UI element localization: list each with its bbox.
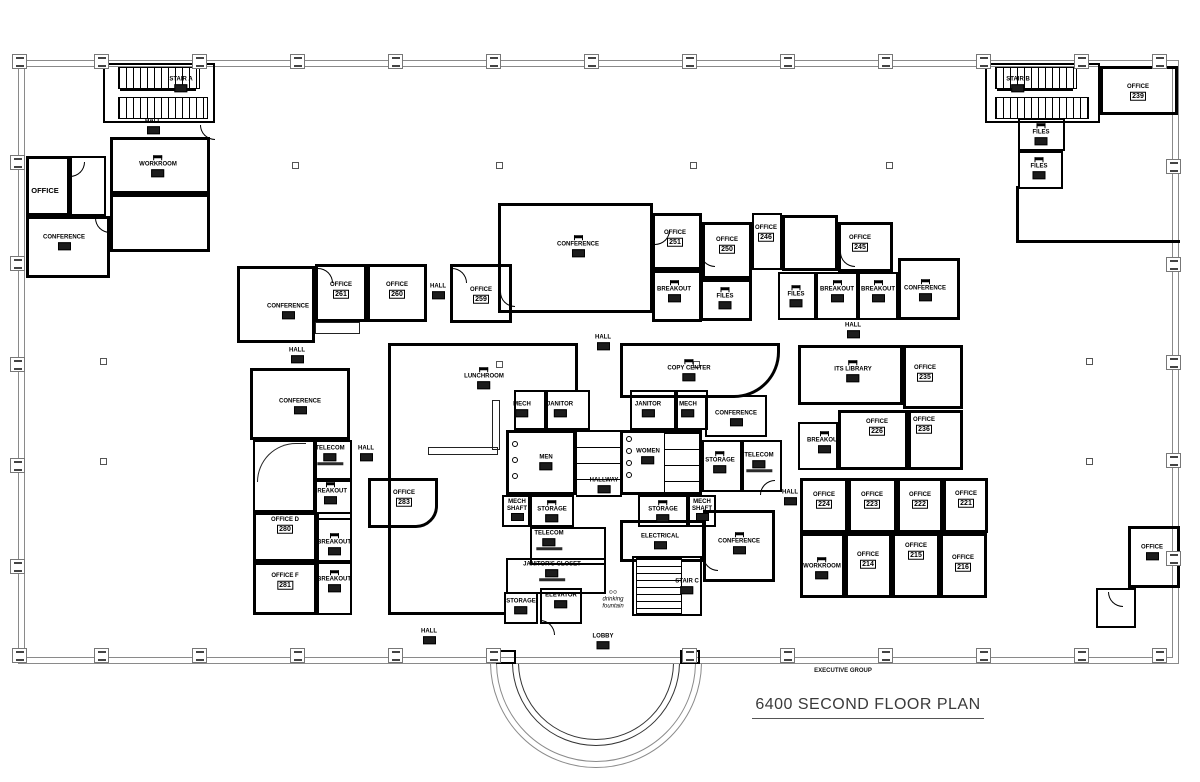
room-label: BREAKOUT	[861, 280, 895, 302]
room-label: LOBBY	[593, 633, 614, 649]
room-name: HALL	[289, 347, 305, 354]
room-name: WOMEN	[636, 448, 660, 455]
room-label: OFFICE246	[755, 225, 777, 242]
column-marker	[878, 54, 893, 69]
room-number	[598, 485, 611, 493]
room-label: BREAKOUT	[317, 570, 351, 592]
desk-icon	[153, 155, 162, 160]
room-number	[657, 514, 670, 522]
toilet-fixture	[626, 472, 632, 478]
room-label: ELECTRICAL	[641, 533, 679, 549]
column-marker	[584, 54, 599, 69]
room-label: STORAGE	[537, 500, 567, 522]
desk-icon	[330, 533, 339, 538]
room-name: OFFICE	[849, 235, 871, 242]
room-name: OFFICE	[1141, 544, 1163, 551]
room-name: CONFERENCE	[904, 285, 946, 292]
room-number: 281	[277, 580, 293, 589]
desk-icon	[848, 360, 857, 365]
column-marker	[780, 54, 795, 69]
column-marker	[1166, 257, 1181, 272]
room-label: HALL	[845, 322, 861, 338]
room-name: FILES	[1030, 163, 1047, 170]
room-name: OFFICE	[330, 282, 352, 289]
room-label: HALLWAY	[590, 477, 619, 493]
room-label: FILES	[1032, 123, 1049, 145]
desk-icon	[874, 280, 883, 285]
room-number	[753, 460, 766, 468]
wall	[388, 612, 506, 615]
room-name: OFFICE	[914, 365, 936, 372]
room-name: OFFICE	[866, 419, 888, 426]
room-number	[846, 374, 859, 382]
column-marker	[94, 54, 109, 69]
toilet-fixture	[626, 460, 632, 466]
wall	[498, 203, 653, 313]
room-label: OFFICE	[31, 188, 59, 195]
room-number	[546, 569, 559, 577]
room-number	[681, 586, 694, 594]
room-name: STORAGE	[506, 598, 536, 605]
room-name: WORKROOM	[803, 563, 841, 570]
grid-marker	[886, 162, 893, 169]
room-number	[831, 294, 844, 302]
room-number: 222	[912, 499, 928, 508]
room-name: BREAKOUT	[657, 286, 691, 293]
room-number	[553, 409, 566, 417]
stair-treads	[995, 97, 1089, 119]
room-name: STAIR A	[169, 76, 192, 83]
room-number: 259	[473, 294, 489, 303]
room-number: 239	[1130, 91, 1146, 100]
wall	[110, 194, 210, 252]
room-label: BREAKOUT	[657, 280, 691, 302]
room-label: MECH SHAFT	[507, 499, 527, 521]
room-label: JANITOR	[635, 401, 661, 417]
room-number	[515, 606, 528, 614]
room-number: 283	[396, 497, 412, 506]
room-name: OFFICE	[664, 230, 686, 237]
fountain-icon: ⊙⊙	[609, 591, 617, 596]
room-label: STORAGE	[648, 500, 678, 522]
column-marker	[976, 54, 991, 69]
room-name: HALL	[421, 628, 437, 635]
room-label: HALL	[595, 334, 611, 350]
room-number: 251	[667, 237, 683, 246]
room-number	[729, 418, 742, 426]
room-label: TELECOM	[534, 530, 563, 550]
room-number: 250	[719, 244, 735, 253]
room-number	[597, 641, 610, 649]
desk-icon	[659, 500, 668, 505]
room-label: OFFICE214	[857, 552, 879, 569]
desk-icon	[1036, 123, 1045, 128]
room-number	[714, 465, 727, 473]
room-number	[147, 126, 160, 134]
room-label: JANITOR'S CLOSET	[523, 561, 581, 581]
room-name: OFFICE D	[271, 517, 299, 524]
column-marker	[10, 256, 25, 271]
room-number: 235	[917, 372, 933, 381]
desk-icon	[833, 280, 842, 285]
wall	[752, 213, 782, 270]
room-name: STORAGE	[537, 506, 567, 513]
room-number	[668, 294, 681, 302]
room-name: OFFICE	[386, 282, 408, 289]
toilet-fixture	[512, 457, 518, 463]
room-label: HALL	[289, 347, 305, 363]
desk-icon	[920, 279, 929, 284]
room-label: OFFICE	[1141, 544, 1163, 560]
room-label: OFFICE235	[914, 365, 936, 382]
column-marker	[682, 54, 697, 69]
room-number: 236	[916, 424, 932, 433]
column-marker	[1152, 54, 1167, 69]
room-name: OFFICE	[1127, 84, 1149, 91]
room-label: LUNCHROOM	[464, 367, 504, 389]
room-number	[324, 453, 337, 461]
room-number	[423, 636, 436, 644]
room-number	[432, 291, 445, 299]
toilet-fixture	[626, 448, 632, 454]
room-name: OFFICE	[857, 552, 879, 559]
floor-plan: 6400 SECOND FLOOR PLAN EXECUTIVE GROUP S…	[0, 0, 1200, 782]
room-label: OFFICE222	[909, 492, 931, 509]
room-label: OFFICE239	[1127, 84, 1149, 101]
room-name: TELECOM	[315, 445, 344, 452]
room-number	[151, 169, 164, 177]
room-number	[597, 342, 610, 350]
room-name: MECH	[513, 401, 531, 408]
room-name: CONFERENCE	[718, 538, 760, 545]
entry-canopy	[488, 664, 708, 778]
column-marker	[1166, 551, 1181, 566]
wall	[575, 343, 578, 391]
room-name: HALL	[430, 283, 446, 290]
room-label: FILES	[787, 285, 804, 307]
column-marker	[1152, 648, 1167, 663]
room-number	[696, 513, 709, 521]
room-label: OFFICE215	[905, 543, 927, 560]
room-number: 215	[908, 550, 924, 559]
room-name: FILES	[1032, 129, 1049, 136]
room-number	[293, 406, 306, 414]
room-label: MECH SHAFT	[692, 499, 712, 521]
room-name: OFFICE	[813, 492, 835, 499]
room-number: 261	[333, 289, 349, 298]
room-name: OFFICE	[755, 225, 777, 232]
room-name: STAIR B	[1006, 76, 1030, 83]
column-marker	[486, 54, 501, 69]
room-label: CONFERENCE	[904, 279, 946, 301]
room-name: MECH SHAFT	[507, 499, 527, 512]
room-name: OFFICE	[913, 417, 935, 424]
room-number	[918, 293, 931, 301]
room-label: STAIR B	[1006, 76, 1030, 92]
column-marker	[192, 648, 207, 663]
room-name: LUNCHROOM	[464, 373, 504, 380]
desk-icon	[330, 570, 339, 575]
room-subtext	[746, 469, 772, 472]
column-marker	[192, 54, 207, 69]
room-label: BREAKOUT	[807, 431, 841, 453]
column-marker	[12, 54, 27, 69]
room-name: TELECOM	[534, 530, 563, 537]
room-name: OFFICE	[716, 237, 738, 244]
room-label: MECH	[513, 401, 531, 417]
room-name: CONFERENCE	[557, 241, 599, 248]
room-label: OFFICE216	[952, 555, 974, 572]
toilet-fixture	[626, 436, 632, 442]
desk-icon	[573, 235, 582, 240]
room-name: HALL	[845, 322, 861, 329]
desk-icon	[479, 367, 488, 372]
room-name: FILES	[716, 293, 733, 300]
room-name: CONFERENCE	[715, 410, 757, 417]
column-marker	[1074, 54, 1089, 69]
room-label: JANITOR	[547, 401, 573, 417]
room-label: OFFICE236	[913, 417, 935, 434]
room-label: OFFICE251	[664, 230, 686, 247]
room-name: HALL	[595, 334, 611, 341]
column-marker	[10, 357, 25, 372]
column-marker	[10, 559, 25, 574]
room-number	[789, 299, 802, 307]
room-name: JANITOR	[547, 401, 573, 408]
room-name: OFFICE	[393, 490, 415, 497]
desk-icon	[791, 285, 800, 290]
room-name: OFFICE	[861, 492, 883, 499]
room-number	[543, 538, 556, 546]
room-name: CONFERENCE	[267, 303, 309, 310]
room-label: STORAGE	[705, 451, 735, 473]
room-label: OFFICE245	[849, 235, 871, 252]
wall	[428, 447, 498, 455]
room-number: 223	[864, 499, 880, 508]
room-label: OFFICE226	[866, 419, 888, 436]
room-label: OFFICE261	[330, 282, 352, 299]
room-label: BREAKOUT	[313, 482, 347, 504]
desk-icon	[684, 359, 693, 364]
column-marker	[1074, 648, 1089, 663]
room-number	[511, 513, 524, 521]
column-marker	[682, 648, 697, 663]
room-number	[175, 84, 188, 92]
room-name: MECH	[679, 401, 697, 408]
room-subtext	[536, 547, 562, 550]
room-label: HALL	[782, 489, 798, 505]
column-marker	[1166, 355, 1181, 370]
room-name: OFFICE	[31, 188, 59, 195]
room-number: 246	[758, 232, 774, 241]
room-number: 226	[869, 426, 885, 435]
room-label: ELEVATOR	[545, 592, 577, 608]
desk-icon	[1034, 157, 1043, 162]
wall	[388, 343, 578, 346]
room-number	[546, 514, 559, 522]
room-name: OFFICE	[952, 555, 974, 562]
room-name: HALL	[358, 445, 374, 452]
wall	[492, 400, 500, 450]
room-label: FILES	[716, 287, 733, 309]
room-name: CONFERENCE	[279, 398, 321, 405]
column-marker	[976, 648, 991, 663]
room-number: 221	[958, 498, 974, 507]
room-label: FILES	[1030, 157, 1047, 179]
room-number	[281, 311, 294, 319]
room-label: OFFICE F281	[271, 573, 298, 590]
room-name: STORAGE	[648, 506, 678, 513]
room-number	[641, 456, 654, 464]
column-marker	[10, 458, 25, 473]
room-name: BREAKOUT	[820, 286, 854, 293]
room-label: OFFICE250	[716, 237, 738, 254]
building-label: EXECUTIVE GROUP	[814, 668, 872, 674]
room-number	[872, 294, 885, 302]
room-name: ELEVATOR	[545, 592, 577, 599]
grid-marker	[1086, 358, 1093, 365]
room-label: STAIR A	[169, 76, 192, 92]
desk-icon	[548, 500, 557, 505]
room-name: ELECTRICAL	[641, 533, 679, 540]
room-number: 260	[389, 289, 405, 298]
room-name: FILES	[787, 291, 804, 298]
room-number	[291, 355, 304, 363]
room-name: COPY CENTER	[667, 365, 710, 372]
room-label: WORKROOM	[139, 155, 177, 177]
column-marker	[290, 648, 305, 663]
room-name: HALL	[145, 118, 161, 125]
desk-icon	[817, 557, 826, 562]
room-label: ITS LIBRARY	[834, 360, 871, 382]
desk-icon	[670, 280, 679, 285]
room-label: WORKROOM	[803, 557, 841, 579]
room-name: OFFICE	[909, 492, 931, 499]
room-number	[554, 600, 567, 608]
room-name: ITS LIBRARY	[834, 366, 871, 373]
column-marker	[486, 648, 501, 663]
room-number	[477, 381, 490, 389]
room-label: CONFERENCE	[718, 532, 760, 554]
column-marker	[1166, 159, 1181, 174]
room-label: MECH	[679, 401, 697, 417]
room-number	[1146, 552, 1159, 560]
toilet-fixture	[512, 441, 518, 447]
room-number	[1012, 84, 1025, 92]
room-number	[324, 496, 337, 504]
grid-marker	[100, 358, 107, 365]
column-marker	[10, 155, 25, 170]
room-name: STAIR C	[675, 578, 699, 585]
room-number: 224	[816, 499, 832, 508]
plan-title: 6400 SECOND FLOOR PLAN	[752, 696, 984, 719]
column-marker	[388, 648, 403, 663]
room-number	[682, 373, 695, 381]
desk-icon	[326, 482, 335, 487]
room-label: OFFICE259	[470, 287, 492, 304]
room-label: BREAKOUT	[820, 280, 854, 302]
grid-marker	[690, 162, 697, 169]
room-number	[515, 409, 528, 417]
room-name: CONFERENCE	[43, 234, 85, 241]
room-name: BREAKOUT	[861, 286, 895, 293]
column-marker	[878, 648, 893, 663]
room-label: CONFERENCE	[43, 234, 85, 250]
room-label: HALL	[145, 118, 161, 134]
room-name: LOBBY	[593, 633, 614, 640]
grid-marker	[1086, 458, 1093, 465]
room-label: TELECOM	[744, 452, 773, 472]
room-label: COPY CENTER	[667, 359, 710, 381]
column-marker	[290, 54, 305, 69]
room-name: MECH SHAFT	[692, 499, 712, 512]
room-label: BREAKOUT	[317, 533, 351, 555]
desk-icon	[820, 431, 829, 436]
room-number: 216	[955, 562, 971, 571]
room-number	[540, 462, 553, 470]
room-label: OFFICE223	[861, 492, 883, 509]
room-number	[1034, 137, 1047, 145]
room-label: HALL	[430, 283, 446, 299]
room-name: drinking fountain	[602, 597, 623, 610]
room-label: HALL	[358, 445, 374, 461]
wall	[664, 432, 702, 494]
grid-marker	[496, 162, 503, 169]
room-number	[815, 571, 828, 579]
room-number: 280	[277, 524, 293, 533]
room-name: BREAKOUT	[317, 576, 351, 583]
room-number	[328, 547, 341, 555]
room-label: CONFERENCE	[279, 398, 321, 414]
room-label: OFFICE224	[813, 492, 835, 509]
room-label: CONFERENCE	[267, 303, 309, 319]
room-number	[681, 409, 694, 417]
grid-marker	[292, 162, 299, 169]
room-label: OFFICE221	[955, 491, 977, 508]
column-marker	[388, 54, 403, 69]
room-label: HALL	[421, 628, 437, 644]
column-marker	[780, 648, 795, 663]
room-name: HALLWAY	[590, 477, 619, 484]
room-number	[654, 541, 667, 549]
room-name: JANITOR	[635, 401, 661, 408]
wall	[315, 322, 360, 334]
room-number	[847, 330, 860, 338]
wall	[1016, 186, 1019, 243]
room-number	[571, 249, 584, 257]
room-name: WORKROOM	[139, 161, 177, 168]
room-number	[328, 584, 341, 592]
room-label: MEN	[539, 454, 552, 470]
room-name: OFFICE F	[271, 573, 298, 580]
room-name: HALL	[782, 489, 798, 496]
room-name: OFFICE	[470, 287, 492, 294]
room-number: 245	[852, 242, 868, 251]
room-name: JANITOR'S CLOSET	[523, 561, 581, 568]
desk-icon	[734, 532, 743, 537]
column-marker	[12, 648, 27, 663]
room-label: CONFERENCE	[715, 410, 757, 426]
room-name: TELECOM	[744, 452, 773, 459]
room-number	[1032, 171, 1045, 179]
stair-treads	[118, 97, 208, 119]
room-label: OFFICE D280	[271, 517, 299, 534]
room-name: BREAKOUT	[317, 539, 351, 546]
room-number	[57, 242, 70, 250]
room-label: STAIR C	[675, 578, 699, 594]
room-name: OFFICE	[955, 491, 977, 498]
room-label: ⊙⊙drinking fountain	[602, 591, 623, 610]
